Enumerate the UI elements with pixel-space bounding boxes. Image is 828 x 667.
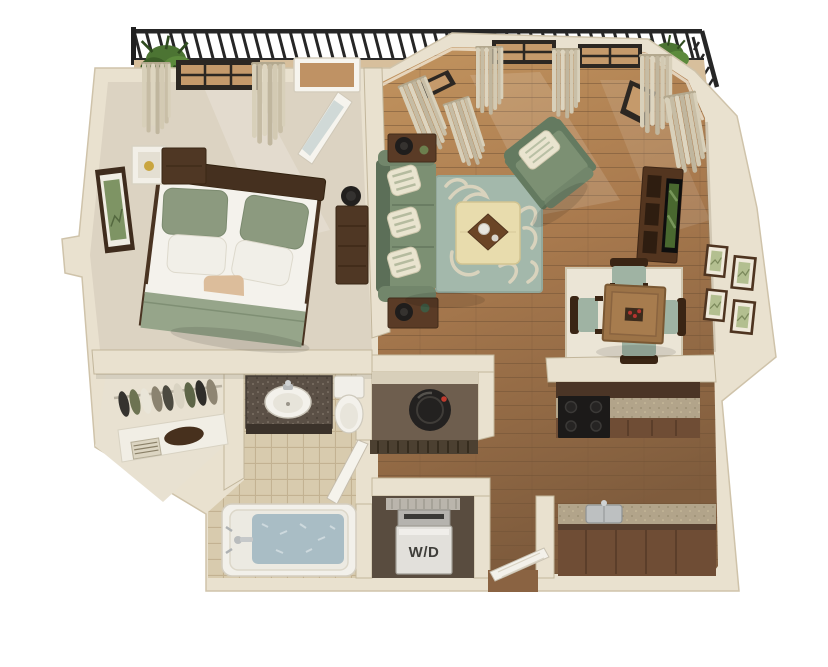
- washer-top-edge: [399, 529, 449, 535]
- wall-frame-4: [730, 299, 757, 335]
- nightstand: [162, 148, 206, 184]
- pillow-white-1: [167, 234, 228, 276]
- toilet: [334, 376, 364, 433]
- tray-saucer: [492, 235, 499, 242]
- kitchen-counter-bottom-run: [558, 500, 716, 576]
- wall-laundry-top: [372, 478, 490, 496]
- bedroom-curtain-left: [141, 62, 171, 134]
- floor-plan-svg: W/D: [0, 0, 828, 667]
- wall-laundry-right: [474, 496, 490, 578]
- wall-frame-1: [703, 244, 728, 278]
- bedroom-curtain-right: [251, 62, 285, 146]
- cube-shelf: [132, 146, 166, 184]
- washer-dryer-label: W/D: [409, 544, 440, 561]
- bay-window-2: [578, 44, 642, 68]
- bathtub: [222, 504, 356, 576]
- wire-shelf: [386, 498, 460, 510]
- ottoman: [456, 202, 520, 264]
- utility-closet: [370, 372, 478, 454]
- wall-bath-hall-lower: [356, 504, 372, 578]
- storage-box: [131, 438, 161, 459]
- living-curtain-3: [639, 54, 672, 135]
- wall-utility-top: [372, 355, 494, 372]
- wall-frame-2: [730, 255, 757, 291]
- tv-console: [637, 167, 683, 264]
- utility-shelf: [372, 372, 478, 384]
- washer-dryer: W/D: [396, 510, 452, 574]
- vanity: [246, 376, 332, 434]
- tub-water: [252, 514, 344, 564]
- living-curtain-2: [551, 48, 580, 118]
- wall-frame-3: [703, 288, 728, 322]
- bedroom-window: [176, 60, 260, 90]
- stove: [558, 396, 610, 438]
- water-heater: [409, 389, 451, 431]
- wall-bedroom-bottom: [92, 350, 372, 374]
- living-curtain-1: [475, 46, 503, 115]
- sofa: [376, 150, 436, 302]
- wall-entry-kitchen: [536, 496, 554, 578]
- end-table-top: [388, 134, 436, 162]
- table-plant-1: [420, 146, 429, 155]
- kitchen-counter-top-run: [556, 382, 700, 438]
- dining-table: [603, 284, 666, 343]
- wall-closet-bathroom: [224, 374, 244, 490]
- laundry-closet: W/D: [372, 496, 474, 578]
- pillow-sage-1: [162, 188, 228, 237]
- bed: [137, 158, 326, 347]
- floor-plan-image: W/D: [0, 0, 828, 667]
- wall-utility-right: [478, 372, 494, 440]
- shelf-lamp: [144, 161, 154, 171]
- louvered-door: [370, 440, 478, 454]
- tray-cup: [479, 224, 490, 235]
